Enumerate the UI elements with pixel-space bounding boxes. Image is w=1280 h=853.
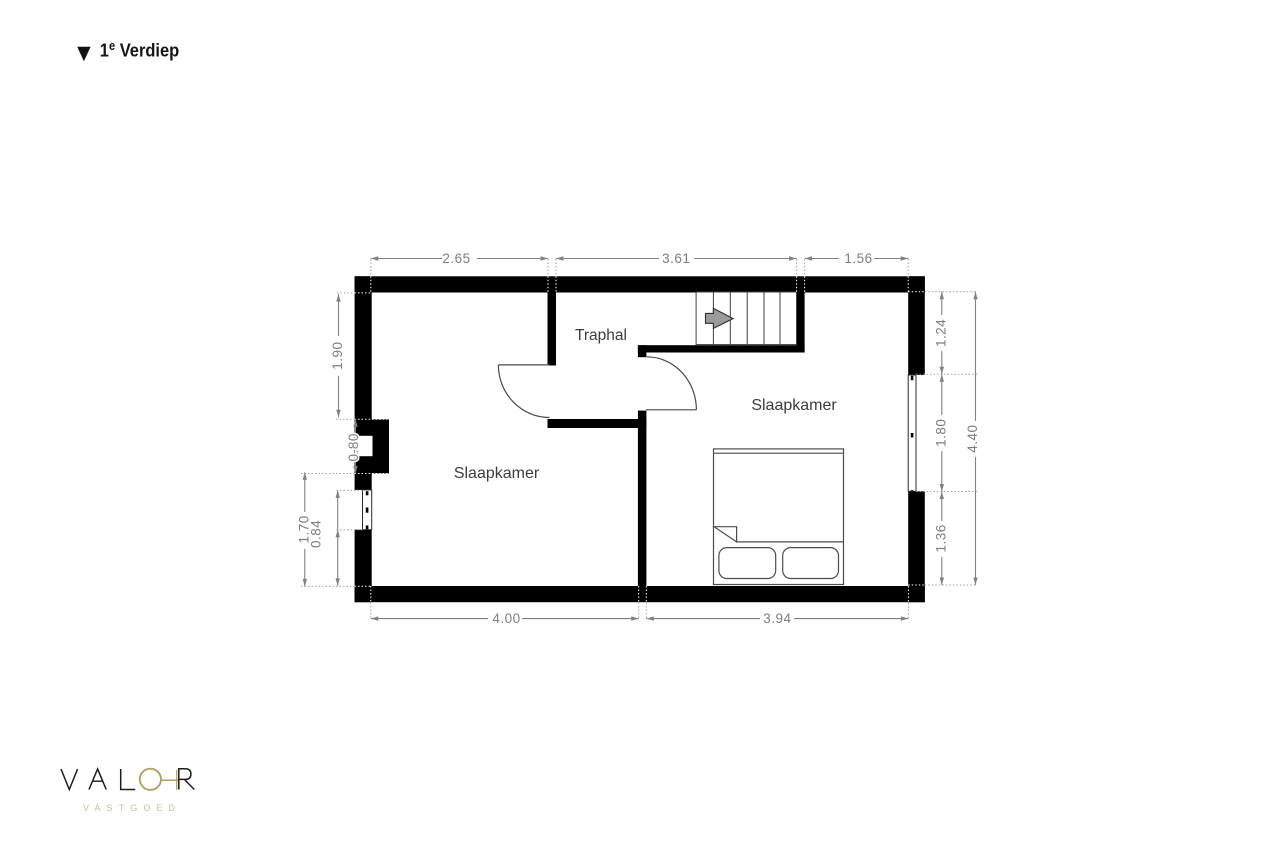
- svg-text:Slaapkamer: Slaapkamer: [454, 465, 540, 482]
- svg-text:0.80: 0.80: [346, 433, 361, 461]
- svg-text:1.80: 1.80: [933, 419, 948, 447]
- svg-text:1.56: 1.56: [844, 251, 872, 266]
- svg-text:VASTGOED: VASTGOED: [83, 803, 181, 813]
- svg-text:Slaapkamer: Slaapkamer: [751, 397, 837, 414]
- svg-text:Traphal: Traphal: [575, 327, 627, 344]
- svg-text:3.61: 3.61: [662, 251, 690, 266]
- svg-text:1.90: 1.90: [330, 341, 345, 369]
- svg-text:1e Verdiep: 1e Verdiep: [100, 38, 179, 60]
- svg-text:4.40: 4.40: [965, 424, 980, 452]
- svg-text:1.36: 1.36: [933, 524, 948, 552]
- svg-text:1.24: 1.24: [933, 319, 948, 347]
- svg-text:0.84: 0.84: [308, 520, 323, 548]
- svg-text:3.94: 3.94: [763, 611, 791, 626]
- svg-text:4.00: 4.00: [492, 611, 520, 626]
- svg-text:2.65: 2.65: [442, 251, 470, 266]
